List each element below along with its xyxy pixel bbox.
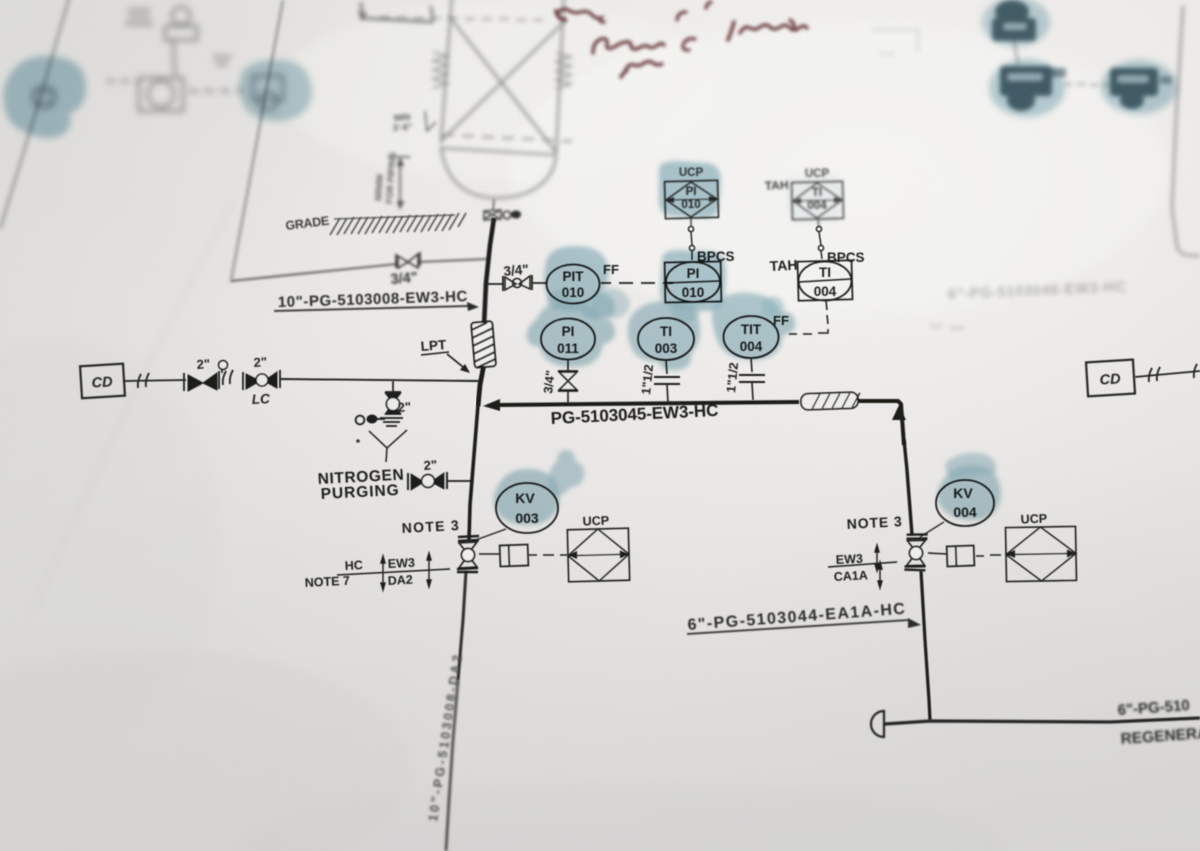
svg-text:EW3: EW3 <box>387 556 415 571</box>
svg-text:NOTE 7: NOTE 7 <box>304 574 350 590</box>
svg-text:2": 2" <box>196 356 210 372</box>
svg-text:TAH: TAH <box>769 257 798 274</box>
svg-text:LPT: LPT <box>420 337 447 354</box>
svg-text:3/4": 3/4" <box>541 369 558 394</box>
svg-text:2": 2" <box>253 354 267 370</box>
svg-text:2": 2" <box>423 457 437 473</box>
svg-text:2": 2" <box>397 399 411 415</box>
svg-text:EW3: EW3 <box>835 552 863 567</box>
svg-text:TAH: TAH <box>764 178 788 193</box>
svg-text:MINIM: MINIM <box>373 174 385 201</box>
svg-text:HC: HC <box>344 558 363 573</box>
svg-text:NOTE 3: NOTE 3 <box>401 517 459 536</box>
svg-text:CD: CD <box>91 374 113 391</box>
svg-text:CA1A: CA1A <box>833 568 868 584</box>
svg-text:DA2: DA2 <box>387 573 413 588</box>
svg-text:TI: TI <box>819 265 831 280</box>
svg-text:UCP: UCP <box>582 514 609 529</box>
svg-text:NOTE 3: NOTE 3 <box>846 513 902 532</box>
svg-text:3/4": 3/4" <box>503 262 529 279</box>
svg-text:CD: CD <box>1099 371 1121 388</box>
svg-text:BPCS: BPCS <box>827 250 865 265</box>
svg-text:3'-6": 3'-6" <box>392 122 412 133</box>
svg-text:004: 004 <box>814 284 837 299</box>
svg-text:UCP: UCP <box>1020 512 1047 527</box>
svg-text:LC: LC <box>251 391 270 407</box>
svg-text:3/4": 3/4" <box>390 270 418 288</box>
